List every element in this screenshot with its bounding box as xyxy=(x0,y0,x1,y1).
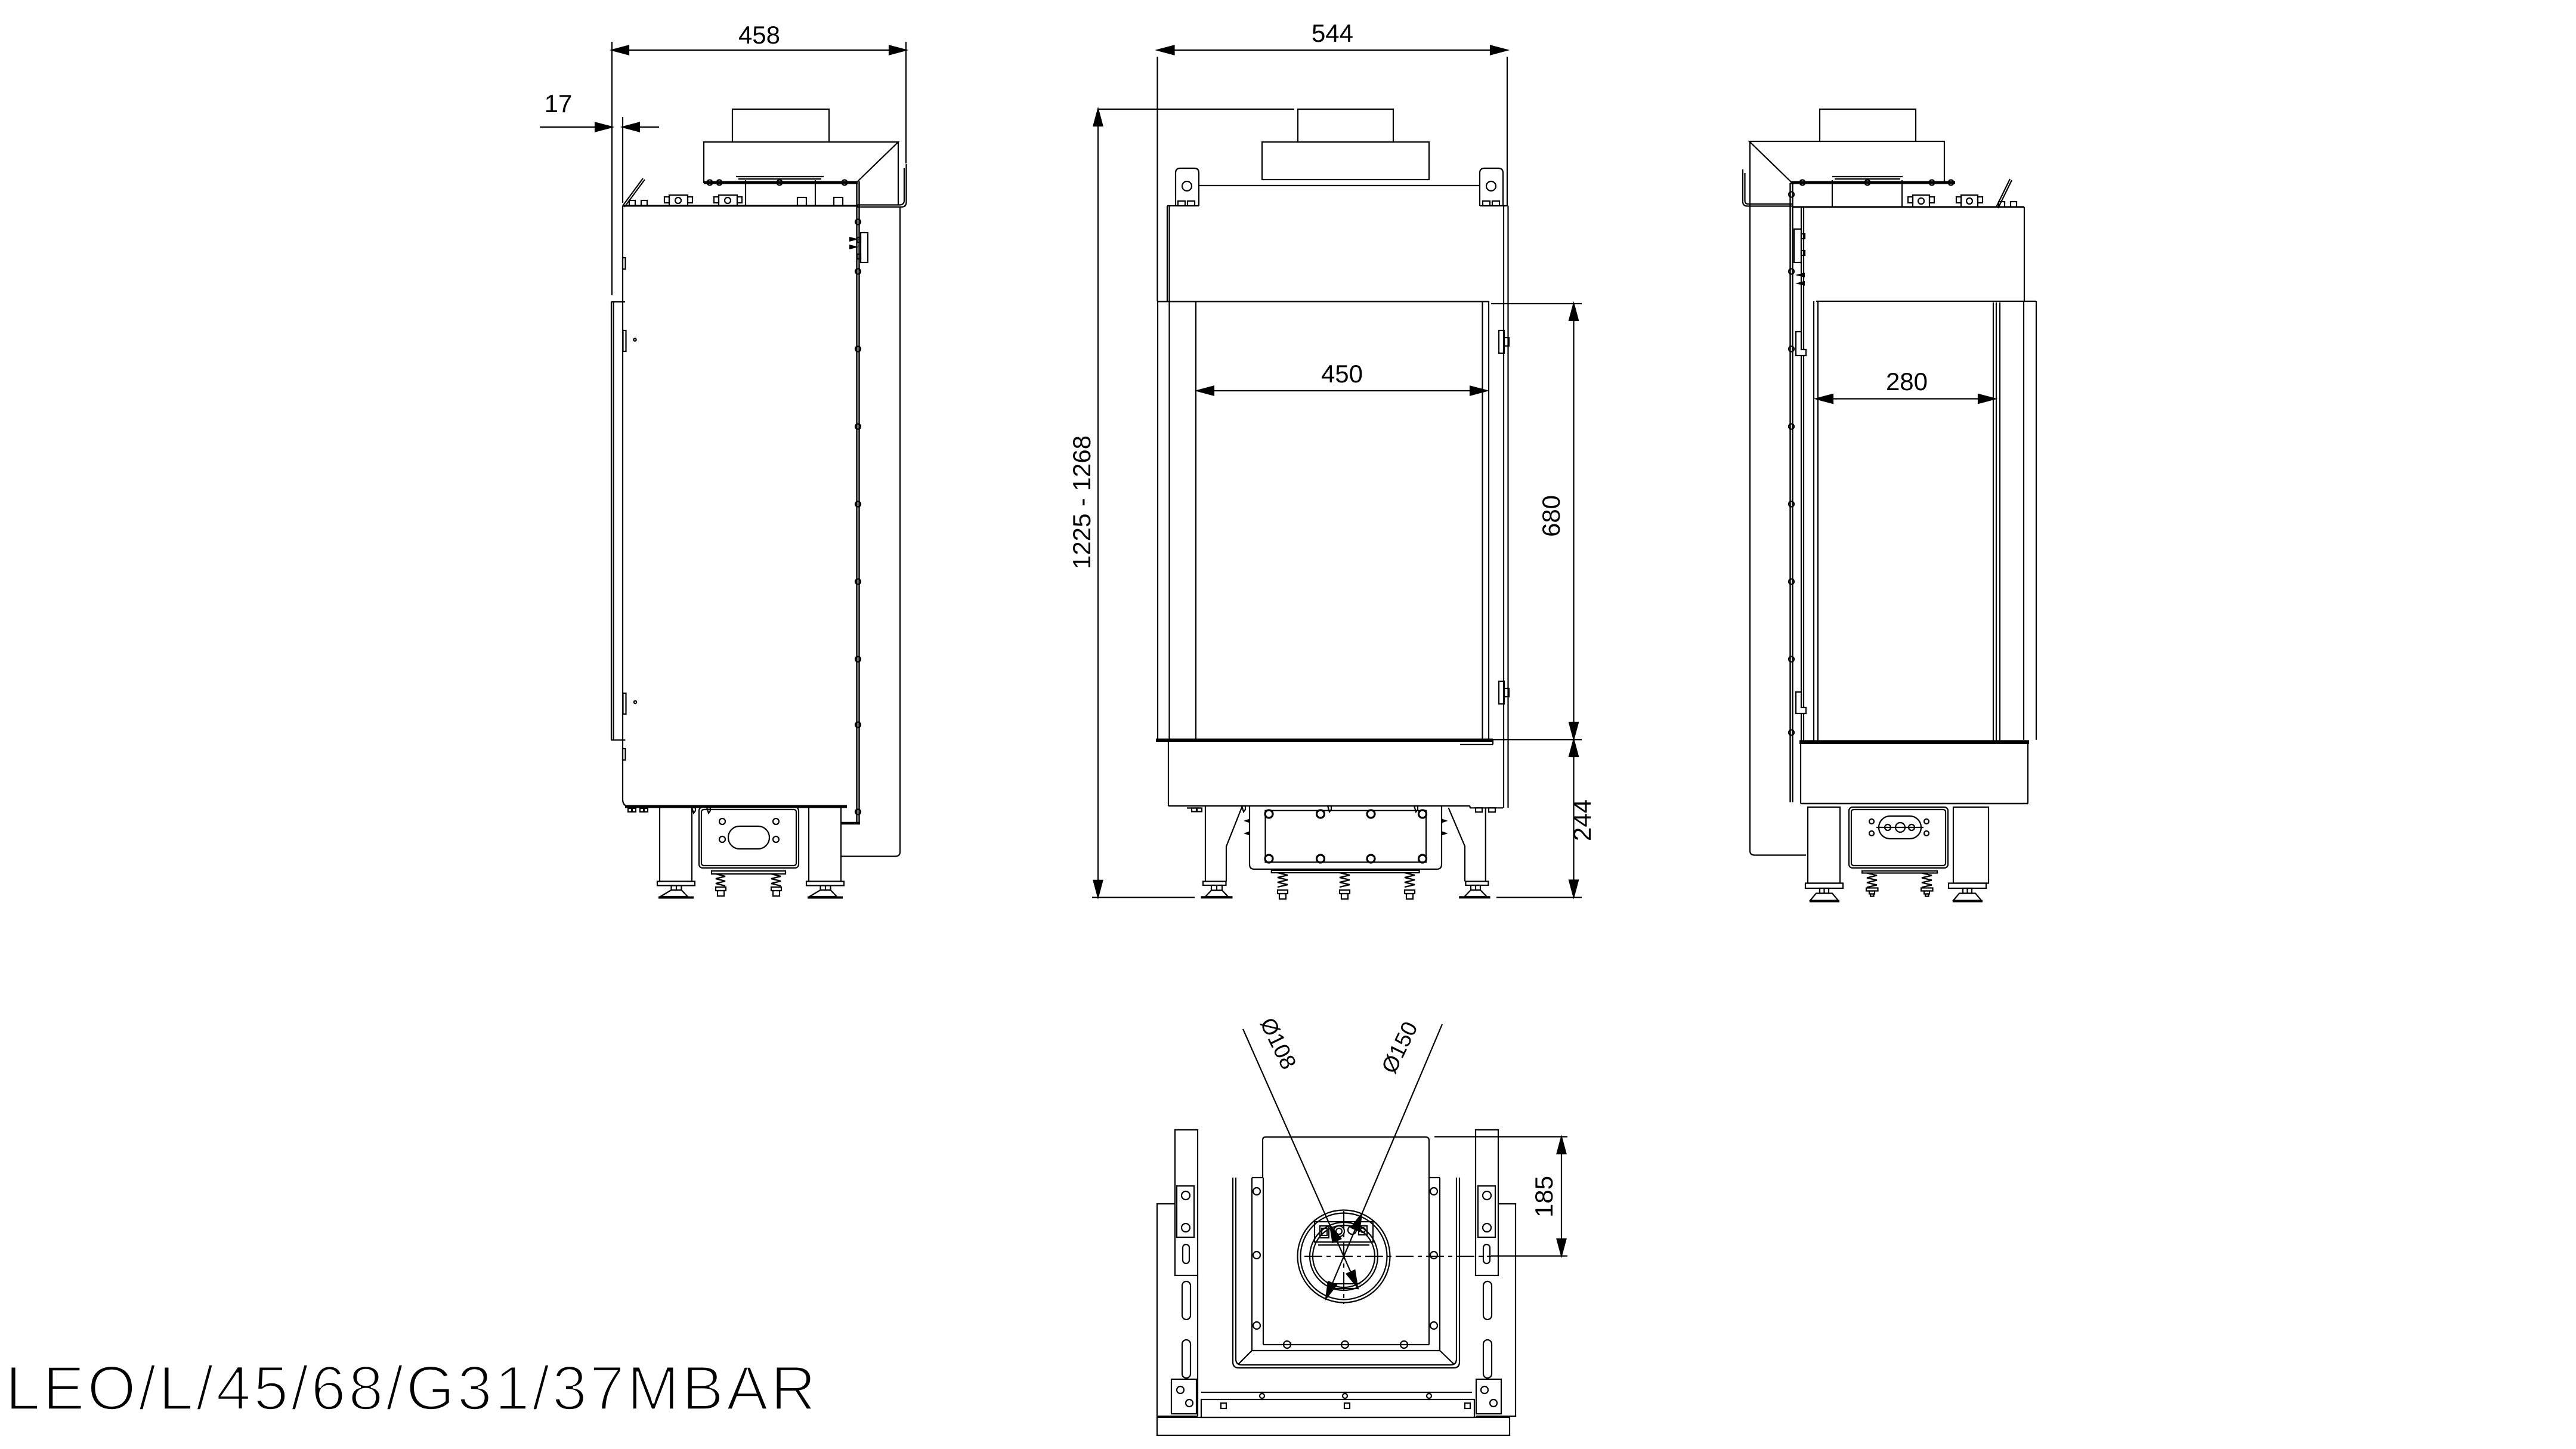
svg-text:458: 458 xyxy=(738,21,780,49)
svg-text:LEO/L/45/68/G31/37MBAR: LEO/L/45/68/G31/37MBAR xyxy=(5,1354,818,1423)
svg-text:1225 - 1268: 1225 - 1268 xyxy=(1068,435,1096,569)
svg-text:680: 680 xyxy=(1537,495,1565,537)
svg-text:17: 17 xyxy=(545,89,573,118)
svg-text:185: 185 xyxy=(1530,1176,1558,1218)
svg-text:244: 244 xyxy=(1568,799,1596,841)
svg-text:Ø108: Ø108 xyxy=(1255,1014,1301,1073)
svg-text:450: 450 xyxy=(1321,360,1363,388)
svg-text:280: 280 xyxy=(1886,367,1928,396)
svg-text:544: 544 xyxy=(1312,19,1353,47)
svg-text:Ø150: Ø150 xyxy=(1377,1018,1422,1077)
